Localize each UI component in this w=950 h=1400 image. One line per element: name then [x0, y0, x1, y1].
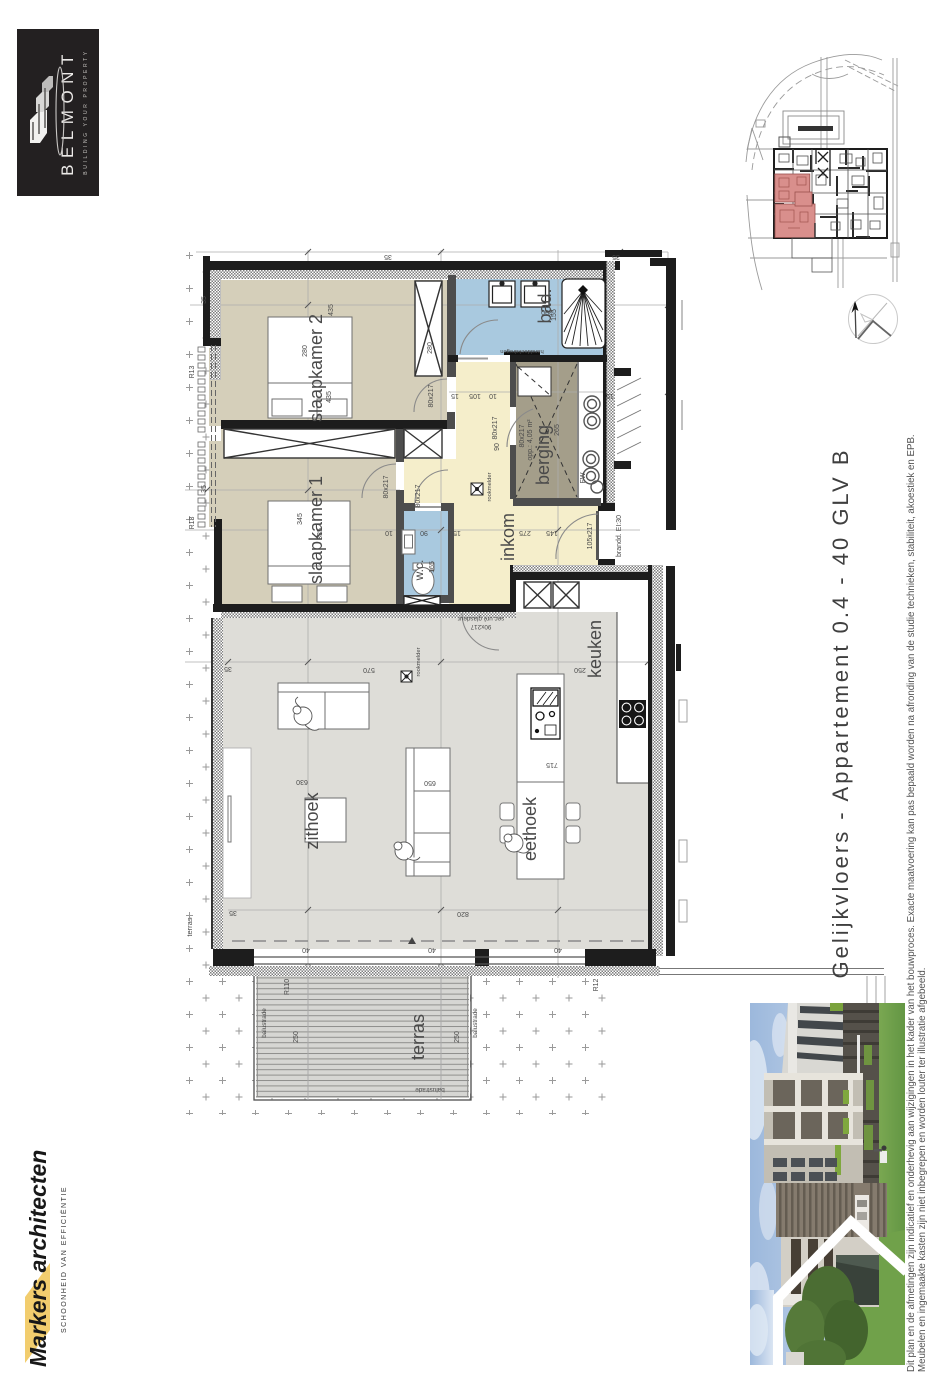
svg-text:15: 15: [451, 392, 459, 399]
svg-text:35: 35: [224, 665, 232, 672]
svg-text:250: 250: [454, 1031, 461, 1043]
svg-text:rookmelder: rookmelder: [487, 472, 493, 501]
svg-text:zithoek: zithoek: [302, 791, 322, 849]
svg-text:265: 265: [554, 424, 561, 436]
svg-text:BUILDING YOUR PROPERTY: BUILDING YOUR PROPERTY: [83, 49, 89, 174]
svg-text:40: 40: [428, 946, 436, 953]
svg-text:rookmelder: rookmelder: [416, 647, 422, 676]
svg-text:Gelijkvloers - Appartement 0.4: Gelijkvloers - Appartement 0.4 - 40 GLV …: [828, 448, 853, 979]
svg-text:keuken: keuken: [585, 620, 605, 678]
svg-text:sec.urê glasdeur: sec.urê glasdeur: [458, 615, 505, 622]
svg-text:R13: R13: [189, 516, 196, 529]
svg-text:820: 820: [457, 910, 469, 917]
svg-text:balustrade: balustrade: [415, 1086, 445, 1093]
svg-text:inkom: inkom: [498, 513, 518, 561]
svg-text:345: 345: [297, 513, 304, 525]
svg-text:SCHOONHEID VAN EFFICIËNTIE: SCHOONHEID VAN EFFICIËNTIE: [60, 1186, 68, 1333]
svg-text:R12: R12: [593, 978, 600, 991]
svg-text:berging: berging: [533, 425, 553, 485]
svg-text:250: 250: [574, 666, 586, 673]
svg-text:570: 570: [363, 666, 375, 673]
svg-text:w.c.: w.c.: [412, 560, 426, 582]
svg-text:275: 275: [519, 529, 531, 536]
svg-text:FW: FW: [580, 472, 587, 483]
svg-text:opp.: 4,05 m²: opp.: 4,05 m²: [527, 419, 534, 461]
svg-text:80x217: 80x217: [383, 475, 390, 498]
svg-text:40: 40: [302, 946, 310, 953]
svg-text:10: 10: [385, 529, 393, 536]
svg-text:650: 650: [424, 779, 436, 786]
svg-text:35: 35: [612, 253, 620, 260]
svg-text:80x217: 80x217: [415, 484, 422, 507]
svg-text:eethoek: eethoek: [520, 796, 540, 861]
svg-text:balustrade: balustrade: [261, 1008, 268, 1038]
svg-text:brandd. EI:30: brandd. EI:30: [616, 515, 623, 557]
svg-text:handdoekdrogen: handdoekdrogen: [500, 348, 544, 354]
svg-text:435: 435: [326, 391, 333, 403]
svg-text:335: 335: [317, 528, 324, 540]
svg-text:280: 280: [302, 345, 309, 357]
svg-text:R110: R110: [284, 979, 291, 995]
svg-text:80x217: 80x217: [492, 416, 499, 439]
svg-text:280: 280: [427, 342, 434, 354]
svg-text:105x217: 105x217: [587, 522, 594, 549]
svg-text:630: 630: [296, 778, 308, 785]
svg-text:90x217: 90x217: [470, 623, 491, 630]
svg-text:35: 35: [229, 909, 237, 916]
svg-text:15: 15: [606, 392, 614, 399]
svg-text:slaapkamer 2: slaapkamer 2: [306, 314, 326, 422]
svg-text:715: 715: [546, 761, 558, 768]
svg-text:40: 40: [554, 946, 562, 953]
svg-text:15: 15: [453, 529, 461, 536]
svg-text:90: 90: [494, 443, 501, 451]
svg-text:105: 105: [469, 392, 481, 399]
svg-text:250: 250: [293, 1031, 300, 1043]
svg-text:165: 165: [429, 561, 436, 573]
svg-text:155: 155: [551, 309, 558, 321]
svg-text:435: 435: [328, 304, 335, 316]
svg-text:R13: R13: [189, 365, 196, 378]
svg-text:terras: terras: [408, 1014, 428, 1060]
svg-text:Meubelen en ingemaakte kasten: Meubelen en ingemaakte kasten zijn niet …: [917, 968, 928, 1372]
svg-text:35: 35: [201, 296, 208, 304]
svg-text:90: 90: [420, 529, 428, 536]
svg-text:Dit plan en de afmetingen zijn: Dit plan en de afmetingen zijn indicatie…: [906, 434, 917, 1372]
svg-text:145: 145: [546, 529, 558, 536]
svg-text:80x217: 80x217: [428, 384, 435, 407]
svg-text:terras: terras: [185, 917, 194, 936]
svg-text:35: 35: [384, 253, 392, 260]
svg-text:35: 35: [201, 485, 208, 493]
svg-text:10: 10: [489, 392, 497, 399]
svg-text:80x217: 80x217: [519, 424, 526, 447]
svg-text:Markers architecten: Markers architecten: [25, 1150, 51, 1367]
svg-text:balustrade: balustrade: [472, 1008, 479, 1038]
